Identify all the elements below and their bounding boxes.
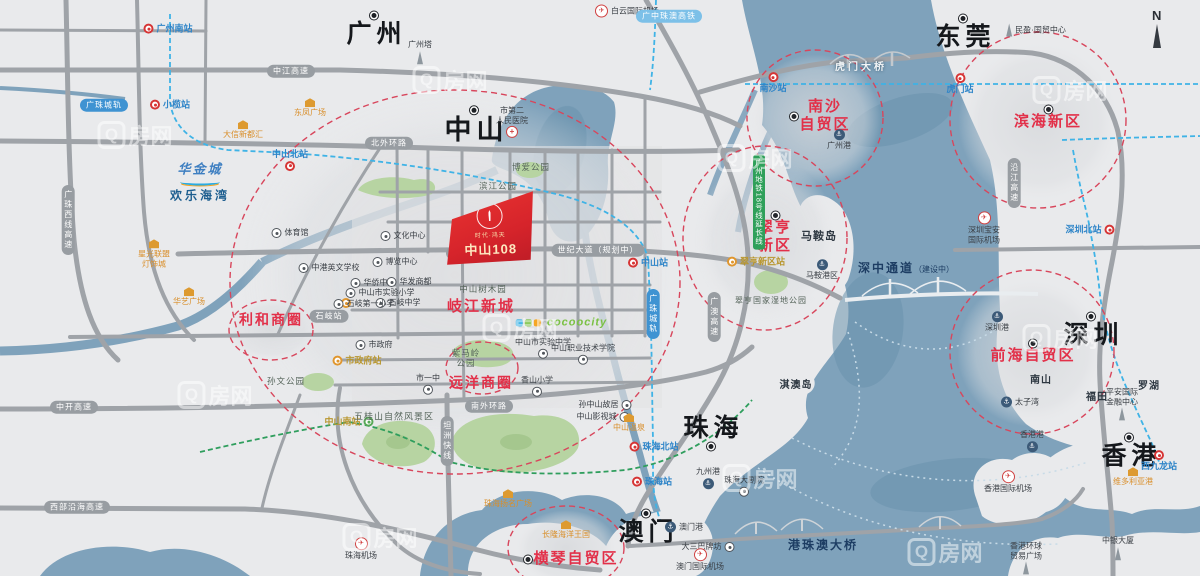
orange-station-icon [332, 356, 342, 366]
building-icon [149, 239, 159, 248]
park-shumuyuan: 中山树木园 [459, 284, 507, 294]
poi-icon [373, 257, 383, 267]
road-shiqi-stop: 石岐站 [310, 310, 349, 323]
zone-dot-icon [1045, 107, 1050, 112]
landmark-label: 中山职业技术学院 [551, 344, 615, 354]
compass: N [1152, 8, 1161, 48]
station-label: 珠海北站 [642, 442, 678, 453]
port-label: 广州港 [827, 141, 851, 151]
city-name: 广州 [341, 19, 406, 49]
zone-dot-icon [791, 114, 796, 119]
road-guangao-expwy: 广澳高速 [708, 292, 721, 342]
road-badge: 石岐站 [310, 310, 349, 323]
landmark-label: 市第二 人民医院 [496, 106, 528, 125]
bridge-label: 深中通道（建设中） [858, 261, 954, 275]
park-label: 翠亨国家湿地公园 [735, 296, 807, 306]
airplane-icon: ✈ [355, 537, 368, 550]
port-label: 太子湾 [1015, 397, 1039, 407]
park-label: 五桂山自然风景区 [354, 412, 434, 423]
park-label: 滨江公园 [479, 181, 517, 191]
landmark-polytechnic: 中山职业技术学院 [551, 344, 615, 365]
landmark-shiqi-primary: 石岐第一小学 [334, 299, 395, 309]
landmark-canton-tower: 广州塔 [408, 40, 432, 64]
project-name: 中山108 [464, 238, 517, 259]
landmark-yangming-plaza: 珠海扬名广场 [484, 489, 532, 509]
station-xiaolan: 小榄站 [150, 100, 190, 111]
metro-station-icon [632, 477, 642, 487]
road-zhongkai-expwy: 中开高速 [50, 401, 98, 414]
tower-icon [1115, 547, 1121, 560]
station-zhongshan: 中山站 [628, 258, 668, 269]
landmark-label: 星光联盟 灯饰城 [138, 249, 170, 268]
zone-name: 利和商圈 [239, 312, 303, 329]
port-hongkong: 香港港⚓ [1020, 430, 1044, 452]
road-xibu-yanhai-expwy: 西部沿海高速 [44, 501, 110, 514]
road-zhongjiang-expwy: 中江高速 [267, 65, 315, 78]
tower-icon [1023, 562, 1029, 575]
bridge-hzmb: 港珠澳大桥 [788, 538, 858, 552]
brand-label: cocoocity [547, 316, 607, 329]
zone-hengqin: 横琴自贸区 [525, 550, 618, 568]
poi-icon [387, 277, 397, 287]
poi-icon [532, 386, 542, 396]
building-icon [184, 287, 194, 296]
road-badge: 坦洲快线 [441, 416, 454, 466]
metro-station-icon [143, 24, 153, 34]
station-label: 小榄站 [163, 100, 190, 111]
landmark-huayi-plaza: 华艺广场 [173, 287, 205, 307]
station-label: 深圳北站 [1065, 225, 1101, 236]
station-shizhengfu: 市政府站 [332, 356, 381, 367]
station-label: 中山北站 [272, 149, 308, 160]
bridge-label: 虎门大桥 [835, 62, 887, 74]
rail-badge: 广中珠澳高铁 [636, 10, 702, 23]
road-badge: 广珠西线高速 [62, 185, 75, 255]
road-yanjiang-expwy: 沿江高速 [1008, 158, 1021, 208]
metro-station-icon [1154, 450, 1164, 460]
metro-station-icon [1105, 225, 1115, 235]
landmark-label: 市政府 [369, 340, 393, 350]
zone-name: 远洋商圈 [449, 375, 513, 392]
city-dot-icon [371, 13, 376, 18]
developer-logo: 华金城 欢乐海湾 [170, 159, 230, 204]
rail-badge: 广珠城轨 [80, 99, 128, 112]
landmark-label: 广州塔 [408, 40, 432, 50]
poi-icon [346, 288, 356, 298]
poi-icon [578, 354, 588, 364]
poi-icon [381, 231, 391, 241]
area-label: 淇澳岛 [780, 380, 813, 392]
airplane-icon: ✈ [978, 211, 991, 224]
road-badge: 南外环路 [465, 400, 513, 413]
area-label: 马鞍岛 [801, 230, 837, 243]
city-name: 东莞 [930, 22, 995, 52]
zone-qianhai: 前海自贸区 [990, 341, 1075, 365]
road-guangzhu-xixian: 广珠西线高速 [62, 185, 75, 255]
road-badge: 中开高速 [50, 401, 98, 414]
poi-icon [622, 400, 632, 410]
bridge-shenzhong: 深中通道（建设中） [858, 261, 954, 275]
poi-icon [725, 542, 735, 552]
rail-badge: 广珠城轨 [647, 289, 660, 339]
zone-lihe: 利和商圈 [239, 312, 303, 329]
station-label: 珠海站 [645, 477, 672, 488]
landmark-shiyizhong: 市一中 [416, 374, 440, 395]
metro-station-icon [768, 72, 778, 82]
station-label: 市政府站 [345, 356, 381, 367]
park-cuiheng-wetland: 翠亨国家湿地公园 [735, 296, 807, 306]
poi-icon [334, 299, 344, 309]
landmark-label: 香山小学 [521, 376, 553, 386]
landmark-label: 大信新都汇 [223, 130, 263, 140]
station-nansha: 南沙站 [759, 72, 786, 94]
landmark-bolan-center: 博览中心 [373, 257, 418, 267]
landmark-label: 中港英文学校 [312, 263, 360, 273]
metro-station-icon [150, 100, 160, 110]
road-badge: 广澳高速 [708, 292, 721, 342]
anchor-icon: ⚓ [703, 478, 714, 489]
area-label: 罗湖 [1138, 381, 1160, 393]
road-badge: 沿江高速 [1008, 158, 1021, 208]
road-shiji-avenue: 世纪大道（规划中） [552, 244, 645, 257]
landmark-victoria-harbour: 维多利亚港 [1113, 467, 1153, 487]
landmark-label: 中银大厦 [1102, 536, 1134, 546]
location-map: 时代·鸿天 中山108 N 华金城 欢乐海湾 广州东莞中山深圳珠海澳门香港南沙 … [0, 0, 1200, 576]
landmark-daxin-mall: 大信新都汇 [223, 120, 263, 140]
zone-yuanyang: 远洋商圈 [449, 375, 513, 392]
poi-icon [538, 348, 548, 358]
area-qiao-island: 淇澳岛 [780, 380, 813, 392]
landmark-label: 东凤广场 [294, 108, 326, 118]
station-label: 中山站 [641, 258, 668, 269]
park-label: 紫马岭 公园 [452, 348, 481, 368]
park-wuguishan: 五桂山自然风景区 [354, 412, 434, 423]
road-badge: 西部沿海高速 [44, 501, 110, 514]
brand-icon [525, 320, 532, 327]
city-dot-icon [960, 16, 965, 21]
airplane-icon: ✈ [694, 548, 707, 561]
anchor-icon: ⚓ [834, 129, 845, 140]
city-dot-icon [708, 444, 713, 449]
landmark-shiyan-primary: 中山市实验小学 [346, 288, 415, 298]
port-taiziwan: ⚓太子湾 [1001, 397, 1039, 408]
area-futian: 福田 [1086, 392, 1108, 404]
poi-icon [739, 486, 749, 496]
compass-n-label: N [1152, 8, 1161, 23]
poi-icon [299, 263, 309, 273]
metro-station-icon [628, 258, 638, 268]
port-maan: ⚓马鞍港区 [806, 259, 838, 281]
airport-zhuhai: ✈珠海机场 [345, 537, 377, 561]
landmark-icc: 香港环球 贸易广场 [1010, 541, 1042, 574]
station-shenzhenbei: 深圳北站 [1065, 225, 1114, 236]
road-tanzhou-expwy: 坦洲快线 [441, 416, 454, 466]
zone-name: 横琴自贸区 [533, 550, 618, 568]
poi-icon [423, 384, 433, 394]
landmark-zhonggang-school: 中港英文学校 [299, 263, 360, 273]
city-dot-icon [472, 108, 477, 113]
area-luohu: 罗湖 [1138, 381, 1160, 393]
city-dongguan: 东莞 [930, 16, 995, 52]
zone-dot-icon [772, 213, 777, 218]
port-label: 九州港 [696, 467, 720, 477]
landmark-zhongshan-hotspring: 中山温泉 [613, 413, 645, 433]
airport-label: 香港国际机场 [984, 484, 1032, 494]
road-beiwaihuan: 北外环路 [365, 137, 413, 150]
park-zimaling: 紫马岭 公园 [452, 348, 481, 368]
tower-icon [1119, 408, 1125, 421]
landmark-label: 长隆海洋王国 [542, 530, 590, 540]
brand-cocoocity: cocoocity [525, 316, 607, 329]
metro-station-icon [629, 442, 639, 452]
port-label: 深圳港 [985, 323, 1009, 333]
landmark-label: 市一中 [416, 374, 440, 384]
logo-line2: 欢乐海湾 [170, 187, 230, 204]
airplane-icon: ✈ [595, 5, 608, 18]
airport-baoan: ✈深圳宝安 国际机场 [968, 211, 1000, 244]
airport-hongkong: ✈香港国际机场 [984, 470, 1032, 494]
landmark-changlong: 长隆海洋王国 [542, 520, 590, 540]
airport-label: 深圳宝安 国际机场 [968, 225, 1000, 244]
port-macau: ⚓澳门港 [665, 522, 703, 533]
area-label: 福田 [1086, 392, 1108, 404]
zone-name: 前海自贸区 [990, 347, 1075, 365]
anchor-icon: ⚓ [817, 259, 828, 270]
port-label: 澳门港 [679, 522, 703, 532]
metro-line-badge: 广州地铁18号线延长线 [753, 155, 765, 250]
landmark-label: 孙中山故居 [579, 400, 619, 410]
station-zhuhai: 珠海站 [632, 477, 672, 488]
landmark-city-hall: 市政府 [356, 340, 393, 350]
landmark-dongfeng-plaza: 东凤广场 [294, 98, 326, 118]
building-icon [238, 120, 248, 129]
zone-name: 岐江新城 [447, 298, 515, 316]
city-dot-icon [1126, 435, 1131, 440]
landmark-label: 博览中心 [386, 257, 418, 267]
logo-line1: 华金城 [170, 159, 230, 178]
building-icon [624, 413, 634, 422]
landmark-label: 珠海扬名广场 [484, 499, 532, 509]
city-name: 珠海 [678, 413, 743, 443]
airport-label: 澳门国际机场 [676, 562, 724, 572]
landmark-label: 华艺广场 [173, 297, 205, 307]
station-label: 广州南站 [156, 24, 192, 35]
station-humen: 虎门站 [946, 73, 973, 95]
port-shenzhen: ⚓深圳港 [985, 311, 1009, 333]
city-zhuhai: 珠海 [678, 413, 743, 449]
tower-icon [1006, 24, 1012, 37]
building-icon [305, 98, 315, 107]
metro-station-icon [285, 161, 295, 171]
poi-icon [272, 228, 282, 238]
area-maan-island: 马鞍岛 [801, 230, 837, 243]
zone-qijiang: 岐江新城 [447, 298, 515, 316]
anchor-icon: ⚓ [665, 522, 676, 533]
rail-guangzhu-1: 广珠城轨 [80, 99, 128, 112]
park-boai: 博爱公园 [512, 162, 550, 172]
landmark-label: 珠海大剧院 [724, 476, 764, 486]
road-nanwaihuan: 南外环路 [465, 400, 513, 413]
tower-icon [417, 51, 423, 64]
landmark-label: 中山影视城 [577, 412, 617, 422]
port-label: 马鞍港区 [806, 271, 838, 281]
port-label: 香港港 [1020, 430, 1044, 440]
city-dot-icon [643, 511, 648, 516]
landmark-xiangshan-primary: 香山小学 [521, 376, 553, 397]
bridge-humen: 虎门大桥 [835, 62, 887, 74]
compass-arrow-icon [1153, 24, 1161, 48]
landmark-huafa-mall: 华发商都 [387, 277, 432, 287]
orange-station-icon [727, 257, 737, 267]
building-icon [561, 520, 571, 529]
zone-binhai: 滨海新区 [1014, 107, 1082, 131]
landmark-minying-itc: 民盈·国贸中心 [1006, 24, 1066, 37]
station-label: 翠亨新区站 [740, 257, 785, 268]
landmark-label: 维多利亚港 [1113, 477, 1153, 487]
landmark-xingguang-union: 星光联盟 灯饰城 [138, 239, 170, 268]
area-label: 南山 [1030, 375, 1052, 387]
road-badge: 北外环路 [365, 137, 413, 150]
port-jiuzhou: 九州港⚓ [696, 467, 720, 489]
park-label: 孙文公园 [267, 376, 305, 386]
building-icon [1128, 467, 1138, 476]
metro-station-icon [955, 73, 965, 83]
landmark-tiyuguan: 体育馆 [272, 228, 309, 238]
landmark-label: 中山市实验小学 [359, 288, 415, 298]
park-binjiang: 滨江公园 [479, 181, 517, 191]
landmark-pingan-ifc: 平安国际 金融中心 [1106, 387, 1138, 420]
park-sunwen: 孙文公园 [267, 376, 305, 386]
zone-dot-icon [1030, 341, 1035, 346]
station-cuihengxinqu: 翠亨新区站 [727, 257, 785, 268]
landmark-no2-hospital: 市第二 人民医院+ [496, 106, 528, 138]
airport-label: 珠海机场 [345, 551, 377, 561]
area-nanshan: 南山 [1030, 375, 1052, 387]
landmark-wenhua-center: 文化中心 [381, 231, 426, 241]
zone-dot-icon [525, 557, 530, 562]
city-dot-icon [1088, 314, 1093, 319]
road-badge: 世纪大道（规划中） [552, 244, 645, 257]
landmark-label: 香港环球 贸易广场 [1010, 541, 1042, 560]
city-guangzhou: 广州 [341, 13, 406, 49]
rail-metro-line18: 广州地铁18号线延长线 [753, 155, 765, 250]
landmark-label: 体育馆 [285, 228, 309, 238]
hospital-icon: + [506, 126, 518, 138]
station-label: 虎门站 [946, 84, 973, 95]
park-label: 博爱公园 [512, 162, 550, 172]
landmark-label: 中山温泉 [613, 423, 645, 433]
bridge-label: 港珠澳大桥 [788, 538, 858, 552]
station-zhuhaibei: 珠海北站 [629, 442, 678, 453]
wave-icon [180, 179, 220, 186]
landmark-label: 文化中心 [394, 231, 426, 241]
port-guangzhou: ⚓广州港 [827, 129, 851, 151]
landmark-label: 平安国际 金融中心 [1106, 387, 1138, 406]
station-zhongshanbei: 中山北站 [272, 149, 308, 171]
road-badge: 中江高速 [267, 65, 315, 78]
anchor-icon: ⚓ [1001, 397, 1012, 408]
station-label: 南沙站 [759, 83, 786, 94]
landmark-boc-tower: 中银大厦 [1102, 536, 1134, 560]
landmark-label: 华发商都 [400, 277, 432, 287]
rail-gz-zhuao-hsr: 广中珠澳高铁 [636, 10, 702, 23]
bridge-label-suffix: （建设中） [914, 265, 954, 274]
airplane-icon: ✈ [1002, 470, 1015, 483]
station-guangzhounan: 广州南站 [143, 24, 192, 35]
landmark-sun-yatsen-residence: 孙中山故居 [579, 400, 632, 410]
park-label: 中山树木园 [459, 284, 507, 294]
anchor-icon: ⚓ [992, 311, 1003, 322]
landmark-label: 石岐第一小学 [347, 299, 395, 309]
rail-guangzhu-2: 广珠城轨 [647, 289, 660, 339]
anchor-icon: ⚓ [1027, 441, 1038, 452]
landmark-zhuhai-opera: 珠海大剧院 [724, 476, 764, 497]
building-icon [503, 489, 513, 498]
poi-icon [356, 340, 366, 350]
landmark-label: 民盈·国贸中心 [1015, 25, 1066, 35]
poi-icon [351, 278, 361, 288]
airport-macau: ✈澳门国际机场 [676, 548, 724, 572]
zone-name: 滨海新区 [1014, 113, 1082, 131]
